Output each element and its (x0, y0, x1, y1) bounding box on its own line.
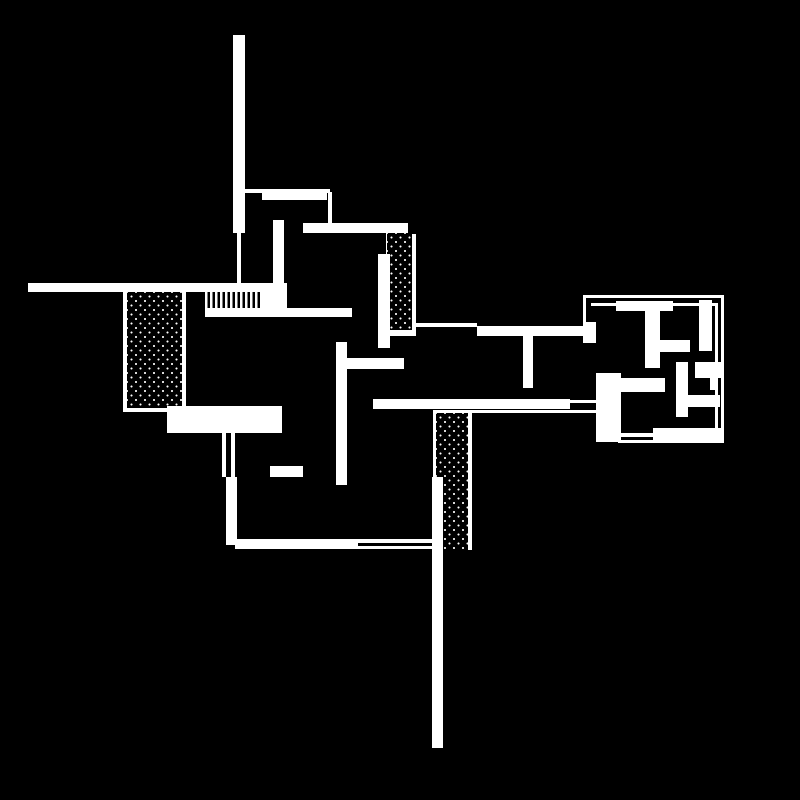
stair-base-bar (205, 308, 352, 317)
upper-terrace-bar (303, 223, 408, 233)
east-outline-bottom (618, 440, 724, 443)
upper-interior-wall (273, 220, 284, 292)
south-long-wall (373, 399, 570, 409)
west-lower-bar (226, 477, 237, 545)
east-top-bar (616, 301, 673, 311)
bottom-wall-line-b (358, 546, 433, 549)
west-thin-line-a (222, 433, 226, 477)
east-left-arm (621, 378, 665, 392)
west-stipple-fill (127, 292, 182, 408)
central-vert-bar (378, 254, 390, 348)
west-thin-line-b (231, 433, 235, 477)
south-interior-wall (336, 342, 347, 485)
stair-comb (205, 291, 259, 308)
bottom-wall-bar (235, 539, 358, 549)
west-big-block (167, 406, 282, 433)
small-dash (270, 466, 303, 477)
chimney-bar-top (233, 35, 245, 233)
east-small-square (695, 362, 723, 378)
bottom-wall-line-a (358, 539, 443, 543)
east-bottom-bar (653, 428, 722, 440)
east-bottom-line (618, 433, 653, 437)
south-wall-line-upper (570, 400, 596, 403)
east-left-block (596, 373, 621, 442)
east-mid-wall (676, 362, 688, 417)
stair-connector (260, 283, 287, 310)
west-stipple-border-right (182, 292, 186, 412)
mid-entry-bar (477, 326, 596, 336)
east-small-stub (710, 378, 718, 390)
north-connector-line (328, 192, 332, 225)
east-entry-block (583, 322, 596, 343)
floor-plan-canvas (0, 0, 800, 800)
north-inner-bar (262, 193, 327, 200)
north-stipple-fill (387, 233, 412, 330)
south-interior-bar (347, 358, 404, 369)
east-outline-top-outer (583, 295, 724, 298)
east-mid-bar (660, 340, 690, 352)
mid-thin-wall (412, 323, 477, 327)
north-stipple-border-bottom (387, 330, 416, 336)
north-stipple-border-right (412, 234, 416, 330)
chimney-stem-line (237, 233, 241, 284)
east-t-stem (645, 311, 660, 368)
mid-t-stem (523, 336, 533, 388)
east-right-bar (699, 300, 712, 351)
south-long-spine (432, 477, 443, 748)
east-right-bar2 (688, 395, 720, 407)
south-stipple-border-right (468, 413, 472, 550)
